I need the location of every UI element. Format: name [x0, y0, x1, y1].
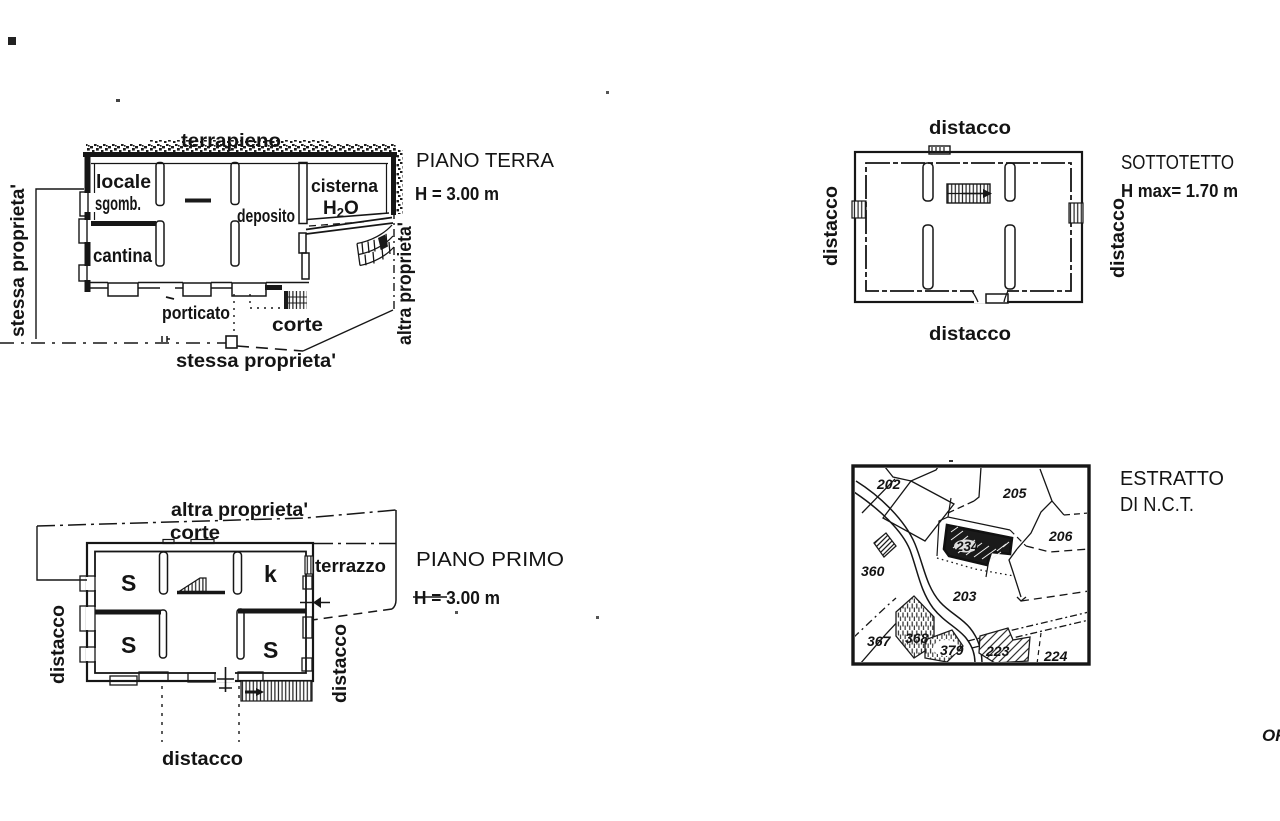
svg-text:S: S [121, 570, 136, 596]
svg-text:360: 360 [861, 563, 885, 579]
svg-text:PIANO TERRA: PIANO TERRA [416, 150, 555, 172]
svg-text:202: 202 [876, 476, 901, 492]
svg-text:distacco: distacco [162, 749, 243, 770]
svg-text:223: 223 [985, 643, 1010, 659]
svg-text:distacco: distacco [929, 118, 1011, 139]
svg-text:altra proprieta': altra proprieta' [171, 500, 308, 521]
svg-text:205: 205 [1002, 485, 1027, 501]
svg-text:stessa proprieta': stessa proprieta' [8, 184, 29, 337]
svg-text:corte: corte [272, 315, 323, 336]
svg-text:PIANO PRIMO: PIANO PRIMO [416, 549, 564, 571]
svg-text:cisterna: cisterna [311, 176, 379, 196]
svg-text:terrazzo: terrazzo [315, 556, 386, 576]
svg-text:S: S [263, 637, 278, 663]
svg-text:altra proprieta': altra proprieta' [395, 222, 416, 345]
svg-text:locale: locale [96, 172, 151, 193]
svg-text:ESTRATTO: ESTRATTO [1120, 468, 1224, 490]
svg-text:224: 224 [1043, 648, 1068, 664]
svg-text:terrapieno: terrapieno [181, 131, 281, 152]
svg-text:379: 379 [940, 642, 964, 658]
svg-text:distacco: distacco [821, 186, 842, 266]
svg-text:distacco: distacco [330, 624, 351, 703]
svg-text:H = 3.00 m: H = 3.00 m [414, 588, 500, 608]
svg-text:DI N.C.T.: DI N.C.T. [1120, 494, 1194, 516]
svg-text:stessa proprieta': stessa proprieta' [176, 351, 336, 372]
svg-text:368: 368 [905, 630, 929, 646]
svg-text:porticato: porticato [162, 303, 230, 323]
svg-text:distacco: distacco [48, 605, 69, 684]
svg-text:distacco: distacco [1108, 198, 1129, 278]
svg-text:deposito: deposito [237, 206, 295, 226]
svg-text:S: S [121, 632, 136, 658]
svg-text:203: 203 [952, 588, 977, 604]
svg-text:206: 206 [1048, 528, 1073, 544]
svg-text:corte: corte [170, 523, 220, 544]
svg-text:SOTTOTETTO: SOTTOTETTO [1121, 152, 1234, 174]
svg-text:k: k [264, 561, 277, 587]
svg-text:H = 3.00 m: H = 3.00 m [415, 184, 499, 204]
svg-text:cantina: cantina [93, 246, 152, 267]
svg-text:OR: OR [1262, 726, 1280, 745]
svg-text:distacco: distacco [929, 324, 1011, 345]
svg-text:234: 234 [955, 539, 979, 554]
svg-text:367: 367 [867, 633, 892, 649]
svg-text:H max= 1.70 m: H max= 1.70 m [1121, 181, 1238, 201]
svg-text:sgomb.: sgomb. [95, 194, 141, 215]
